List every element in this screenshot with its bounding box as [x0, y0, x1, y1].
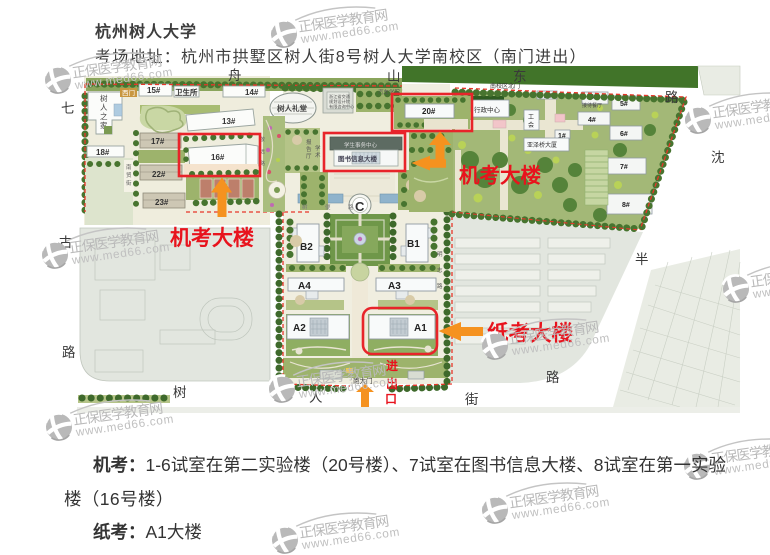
svg-text:卫生所: 卫生所 [175, 87, 198, 97]
svg-text:A1: A1 [414, 323, 427, 334]
svg-text:志: 志 [437, 266, 443, 274]
svg-text:明: 明 [437, 251, 443, 258]
svg-text:B1: B1 [407, 239, 420, 250]
svg-text:树: 树 [100, 93, 108, 103]
svg-text:23#: 23# [155, 198, 169, 207]
svg-text:厅: 厅 [306, 153, 312, 160]
svg-text:20#: 20# [422, 107, 436, 116]
svg-text:B2: B2 [300, 242, 313, 253]
svg-text:路: 路 [437, 282, 443, 290]
svg-text:16#: 16# [211, 153, 225, 162]
svg-text:接待餐厅: 接待餐厅 [582, 102, 602, 109]
svg-text:人: 人 [100, 103, 108, 112]
svg-text:进: 进 [386, 358, 398, 373]
svg-text:18#: 18# [96, 148, 110, 157]
svg-text:山: 山 [387, 69, 401, 84]
svg-text:A3: A3 [388, 281, 401, 292]
svg-text:15#: 15# [147, 86, 161, 95]
svg-text:贸: 贸 [126, 171, 132, 179]
svg-text:13#: 13# [222, 117, 236, 126]
svg-text:亚泽桥大厦: 亚泽桥大厦 [527, 141, 557, 149]
svg-text:学生事务中心: 学生事务中心 [344, 141, 378, 149]
svg-text:17#: 17# [151, 137, 165, 146]
svg-text:街: 街 [465, 392, 479, 407]
svg-text:口: 口 [385, 392, 397, 406]
svg-text:行政中心: 行政中心 [474, 105, 501, 114]
svg-text:西门: 西门 [122, 88, 135, 97]
svg-text:8#: 8# [622, 202, 630, 209]
svg-text:术: 术 [315, 151, 321, 159]
svg-text:5#: 5# [620, 101, 628, 108]
svg-text:东: 东 [513, 69, 527, 84]
svg-text:半: 半 [635, 252, 649, 267]
svg-text:4#: 4# [588, 117, 596, 124]
svg-text:学: 学 [315, 144, 321, 152]
svg-text:之: 之 [100, 111, 108, 121]
svg-text:路: 路 [665, 90, 679, 105]
svg-text:6#: 6# [620, 131, 628, 138]
svg-text:有限咨询中心: 有限咨询中心 [329, 103, 355, 110]
svg-text:工: 工 [528, 114, 534, 121]
svg-text:路: 路 [546, 370, 560, 385]
svg-text:机考大楼: 机考大楼 [459, 164, 541, 188]
svg-text:14#: 14# [245, 88, 259, 97]
svg-text:树 便 路: 树 便 路 [302, 203, 362, 211]
svg-text:A4: A4 [298, 281, 311, 292]
svg-text:22#: 22# [152, 170, 166, 179]
svg-text:舟: 舟 [228, 68, 242, 83]
svg-text:会: 会 [528, 121, 534, 129]
svg-text:沈: 沈 [711, 150, 725, 165]
svg-text:树: 树 [173, 385, 187, 400]
svg-text:七: 七 [61, 101, 75, 116]
svg-text:告: 告 [306, 145, 312, 153]
svg-text:报: 报 [306, 138, 312, 146]
svg-text:A2: A2 [293, 323, 306, 334]
svg-text:街: 街 [126, 179, 132, 187]
svg-text:图书信息大楼: 图书信息大楼 [338, 154, 378, 163]
svg-text:路: 路 [62, 345, 76, 360]
svg-text:南: 南 [126, 163, 132, 171]
svg-text:树人礼堂: 树人礼堂 [277, 103, 307, 113]
svg-text:机考大楼: 机考大楼 [170, 226, 254, 250]
svg-text:7#: 7# [620, 164, 628, 171]
